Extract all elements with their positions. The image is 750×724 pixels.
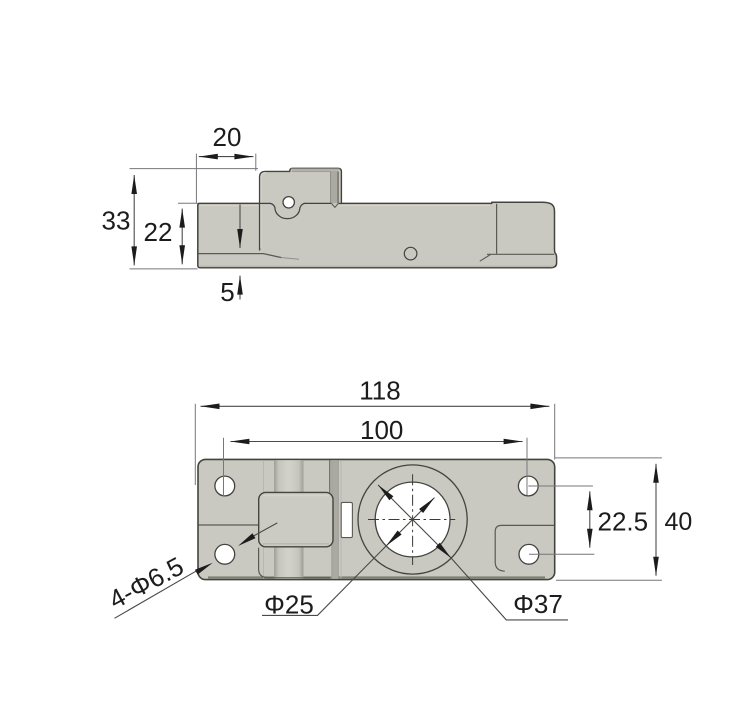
svg-text:Φ37: Φ37 <box>513 589 563 619</box>
svg-text:20: 20 <box>213 122 242 152</box>
svg-text:22: 22 <box>144 217 173 247</box>
svg-text:5: 5 <box>220 277 234 307</box>
svg-text:100: 100 <box>360 415 403 445</box>
svg-text:22.5: 22.5 <box>598 507 649 537</box>
svg-text:Φ25: Φ25 <box>264 590 314 620</box>
svg-text:33: 33 <box>102 206 131 236</box>
svg-text:40: 40 <box>665 508 693 536</box>
svg-text:118: 118 <box>359 376 400 406</box>
